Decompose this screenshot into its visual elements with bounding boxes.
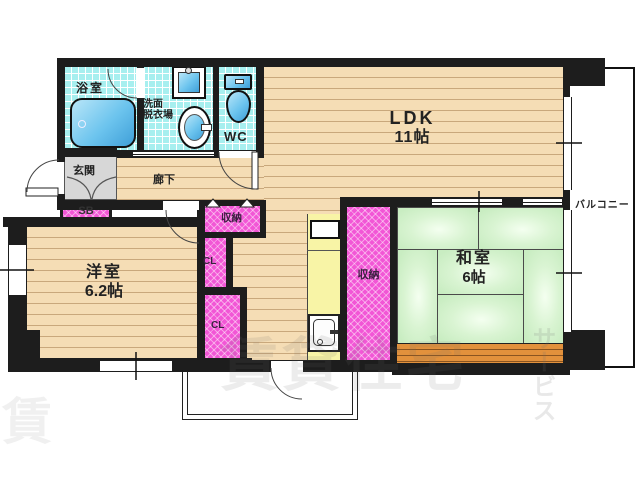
floorplan: 浴室 洗面 脱衣場 WC LDK 11帖 玄関 廊下 SB 収納 CL CL 収… (0, 0, 640, 480)
wc-door-opening (219, 151, 256, 158)
western-room-side-window (8, 245, 27, 295)
tatami-mat (523, 249, 567, 345)
western-room-door-opening (163, 201, 199, 210)
hallway-floor (117, 156, 264, 200)
toilet-tank-icon (224, 74, 252, 90)
western-room-name: 洋室 (54, 264, 154, 283)
room-label-western: 洋室 6.2帖 (54, 264, 154, 302)
western-room-bottom-window (100, 360, 172, 372)
wall-pillar (563, 330, 605, 370)
wall (340, 197, 397, 207)
watermark-fragment: 賃 (2, 382, 52, 454)
label-hall-storage: 収納 (203, 212, 260, 224)
balcony-area (568, 67, 635, 368)
washroom-label-line2: 脱衣場 (143, 110, 173, 121)
room-label-japanese: 和室 6帖 (429, 250, 519, 287)
label-closet-upper: CL (203, 256, 216, 267)
wall (563, 189, 570, 211)
entrance-door-leaf (26, 188, 58, 196)
kitchen-drain-icon (317, 339, 323, 345)
ldk-name: LDK (360, 108, 465, 129)
label-closet-lower: CL (211, 320, 224, 331)
tatami-mat (437, 294, 526, 345)
western-room-size: 6.2帖 (54, 283, 154, 302)
wood-deck-strip (392, 343, 565, 364)
room-label-wc: WC (224, 129, 248, 144)
center-storage (347, 207, 390, 363)
label-center-storage: 収納 (347, 269, 390, 282)
japanese-room-size: 6帖 (429, 269, 519, 287)
porch-door-opening (271, 361, 303, 372)
wall (213, 67, 219, 150)
sink-faucet (201, 124, 212, 131)
bathtub-drain (78, 120, 86, 128)
wall (256, 58, 264, 150)
sliding-door-ldk-washitsu-2 (523, 198, 562, 206)
wall (247, 360, 397, 372)
wall (563, 67, 570, 98)
washroom-label-line1: 洗面 (143, 99, 173, 110)
washer-faucet (185, 67, 192, 74)
kitchen-counter-divider (307, 250, 340, 251)
bathtub-icon (70, 98, 136, 148)
room-label-washroom: 洗面 脱衣場 (143, 99, 173, 121)
ldk-balcony-window (563, 97, 572, 190)
wall (340, 197, 347, 363)
japanese-room-name: 和室 (429, 250, 519, 269)
wall (3, 217, 205, 227)
wall (240, 294, 247, 361)
room-label-hallway: 廊下 (153, 171, 175, 187)
sliding-door-ldk-washitsu (432, 198, 502, 206)
toilet-button (235, 79, 244, 84)
sink-icon (178, 106, 211, 149)
room-label-bathroom: 浴室 (76, 79, 104, 96)
washing-machine-pan (178, 72, 200, 93)
room-label-ldk: LDK 11帖 (360, 108, 465, 148)
bathroom-door-opening (136, 68, 145, 98)
entrance-door-arc (27, 160, 59, 192)
label-shoebox: SB (60, 205, 112, 218)
wall (392, 363, 570, 375)
porch-inner (187, 368, 353, 415)
washroom-sliding-door (133, 151, 214, 157)
tatami-mat (397, 207, 481, 252)
wall (57, 148, 117, 157)
kitchen-sink-icon (308, 314, 340, 352)
kitchen-faucet-icon (330, 330, 338, 334)
ldk-size: 11帖 (360, 129, 465, 148)
wall (57, 58, 568, 67)
range-hood-icon (310, 220, 340, 239)
wall (390, 197, 397, 363)
tatami-mat (478, 207, 567, 252)
washing-machine-icon (172, 66, 206, 99)
room-label-entrance: 玄関 (73, 162, 95, 178)
room-label-balcony: バルコニー (575, 196, 630, 211)
washitsu-balcony-window (563, 210, 572, 332)
